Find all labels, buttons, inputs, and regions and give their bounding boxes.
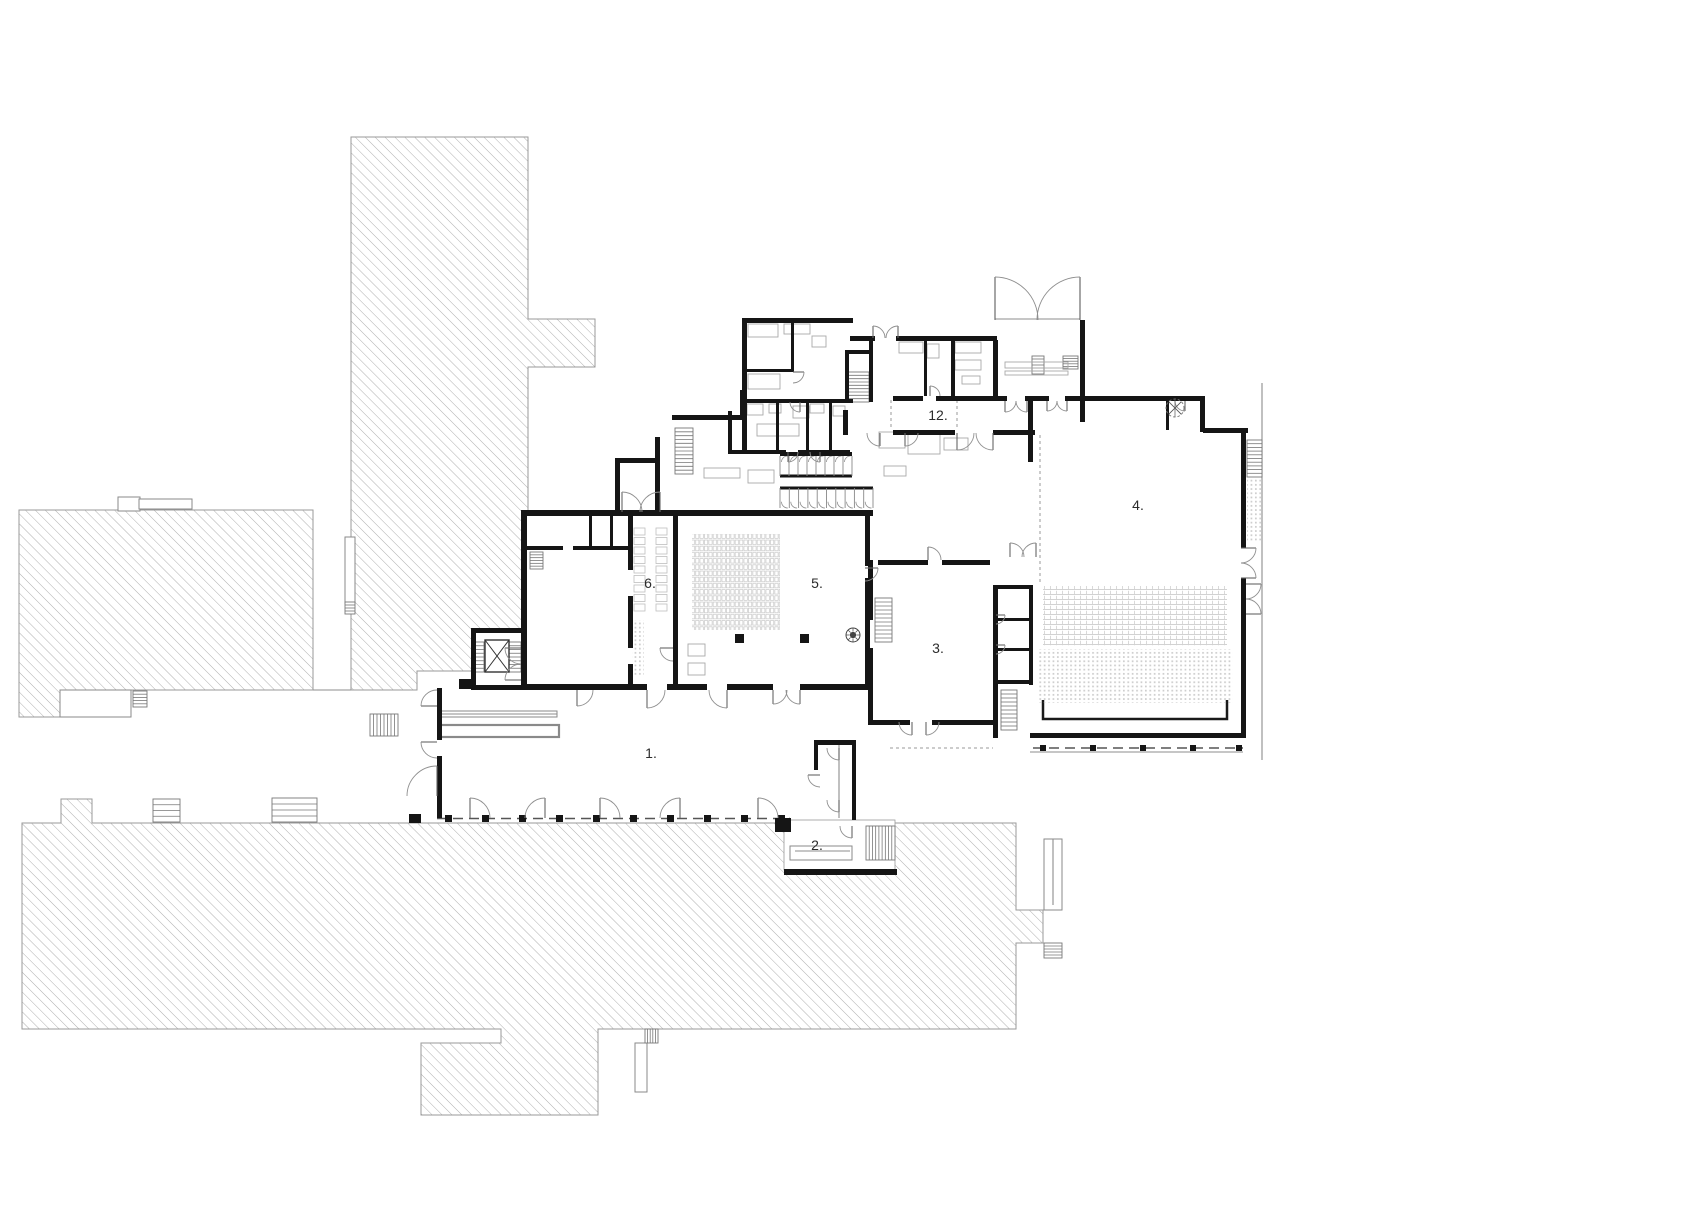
wall-segment: [893, 430, 955, 435]
wall-segment: [791, 318, 794, 372]
stair: [847, 372, 869, 402]
wall-segment: [437, 688, 442, 740]
wall-segment: [852, 740, 856, 820]
room-label-room-2: 2.: [811, 837, 823, 853]
wall-segment: [776, 402, 779, 450]
wall-segment: [896, 336, 955, 341]
wall-segment: [471, 685, 525, 690]
floor-plan: 1.2.3.4.5.6.12.: [0, 0, 1704, 1205]
wall-segment: [814, 740, 818, 770]
wall-segment: [742, 369, 793, 372]
wall-segment: [893, 396, 923, 401]
wall-segment: [1029, 585, 1033, 685]
room-label-room-4: 4.: [1132, 497, 1144, 513]
wall-segment: [437, 756, 442, 818]
wall-segment: [953, 336, 997, 341]
stair: [1001, 690, 1017, 730]
wall-segment: [1241, 430, 1246, 548]
wall-segment: [942, 560, 990, 565]
wall-segment: [868, 720, 910, 725]
pier-west: [345, 537, 355, 603]
wall-segment: [521, 510, 638, 516]
wall-segment: [784, 869, 897, 875]
floor-plan-canvas: 1.2.3.4.5.6.12.: [0, 0, 1704, 1205]
stair: [345, 602, 355, 614]
wall-segment: [1200, 398, 1205, 432]
roof-box-b: [139, 499, 192, 509]
wall-segment: [673, 510, 678, 690]
wall-segment: [995, 396, 1007, 401]
stair: [875, 598, 892, 642]
west-porch: [60, 690, 131, 717]
wall-segment: [1085, 396, 1205, 401]
stair: [370, 714, 398, 736]
wall-segment: [1241, 616, 1246, 738]
foyer-colonnade-column: [593, 815, 600, 822]
wall-segment: [521, 684, 635, 690]
wall-segment: [615, 458, 620, 512]
column: [735, 634, 744, 643]
wall-segment: [628, 596, 633, 648]
wall-segment: [924, 341, 927, 396]
wall-segment: [610, 512, 613, 548]
wall-segment: [806, 402, 809, 450]
stair: [1044, 943, 1062, 958]
foyer-colonnade-column: [704, 815, 711, 822]
wall-segment: [932, 720, 994, 725]
wall-segment: [775, 818, 791, 832]
wall-segment: [521, 510, 527, 690]
stair: [866, 826, 895, 860]
wall-segment: [800, 684, 873, 690]
wall-segment: [742, 318, 853, 323]
wall-segment: [573, 546, 630, 550]
room-label-room-1: 1.: [645, 745, 657, 761]
wall-segment: [814, 740, 856, 745]
foyer-colonnade-column: [556, 815, 563, 822]
west-building: [19, 510, 313, 717]
room-label-room-6: 6.: [644, 575, 656, 591]
wall-segment: [663, 510, 873, 516]
wall-segment: [936, 396, 995, 401]
stair: [1063, 356, 1078, 369]
wall-segment: [1241, 578, 1246, 618]
wall-segment: [655, 437, 660, 512]
stage-terrace-column: [1190, 745, 1196, 751]
stair: [153, 799, 180, 822]
wall-segment: [850, 336, 875, 341]
room-label-room-12: 12.: [928, 407, 947, 423]
wall-segment: [628, 512, 633, 570]
wall-segment: [615, 458, 660, 463]
foyer-colonnade-column: [482, 815, 489, 822]
wall-segment: [993, 618, 1033, 621]
stair: [133, 691, 147, 707]
corridor-ramp-dots: [632, 620, 644, 675]
wall-segment: [865, 510, 870, 566]
wall-segment: [1030, 733, 1246, 738]
foyer-colonnade-column: [741, 815, 748, 822]
wall-segment: [993, 648, 1033, 651]
wall-segment: [742, 399, 853, 403]
column: [409, 814, 421, 823]
foyer-desk: [439, 725, 559, 737]
room-label-room-5: 5.: [811, 575, 823, 591]
stair: [272, 798, 317, 822]
wall-segment: [780, 452, 852, 456]
wall-segment: [471, 628, 525, 633]
stair: [530, 552, 543, 569]
wall-segment: [471, 628, 476, 690]
wall-segment: [672, 415, 744, 420]
wall-segment: [744, 450, 786, 454]
auditorium-rows: [1043, 586, 1227, 646]
wall-segment: [951, 336, 955, 400]
stair: [675, 428, 693, 474]
wall-segment: [521, 546, 563, 550]
east-ramp-dots: [1247, 479, 1261, 541]
wall-segment: [993, 340, 998, 400]
wall-segment: [1065, 396, 1082, 401]
spiral-feature: [846, 628, 860, 642]
wall-segment: [993, 585, 998, 738]
elevator: [485, 640, 509, 672]
hall-chair-grid: [692, 534, 780, 630]
wall-segment: [869, 340, 873, 402]
wall-segment: [628, 664, 633, 688]
wall-segment: [993, 680, 1033, 684]
wall-segment: [740, 390, 745, 418]
wall-segment: [845, 350, 849, 402]
wall-segment: [589, 512, 592, 548]
auditorium-stored: [1039, 649, 1233, 703]
wall-segment: [865, 578, 870, 688]
wall-segment: [878, 560, 928, 565]
column: [459, 679, 471, 689]
wall-segment: [1080, 320, 1085, 422]
column: [800, 634, 809, 643]
extension-strip: [635, 1043, 647, 1092]
wall-segment: [727, 684, 773, 690]
wall-segment: [829, 402, 832, 450]
foyer-colonnade-column: [630, 815, 637, 822]
wall-segment: [993, 585, 1033, 589]
foyer-colonnade-column: [667, 815, 674, 822]
wall-segment: [728, 450, 744, 454]
wall-segment: [667, 684, 707, 690]
stair: [645, 1029, 658, 1043]
wall-segment: [1028, 398, 1033, 462]
stage-terrace-column: [1140, 745, 1146, 751]
stair: [1247, 440, 1262, 477]
stage-terrace-column: [1090, 745, 1096, 751]
roof-box-a: [118, 497, 140, 511]
stage-terrace-column: [1236, 745, 1242, 751]
foyer-colonnade-column: [445, 815, 452, 822]
room-label-room-3: 3.: [932, 640, 944, 656]
wall-segment: [843, 410, 848, 435]
stage-terrace-column: [1040, 745, 1046, 751]
wall-segment: [845, 350, 873, 354]
